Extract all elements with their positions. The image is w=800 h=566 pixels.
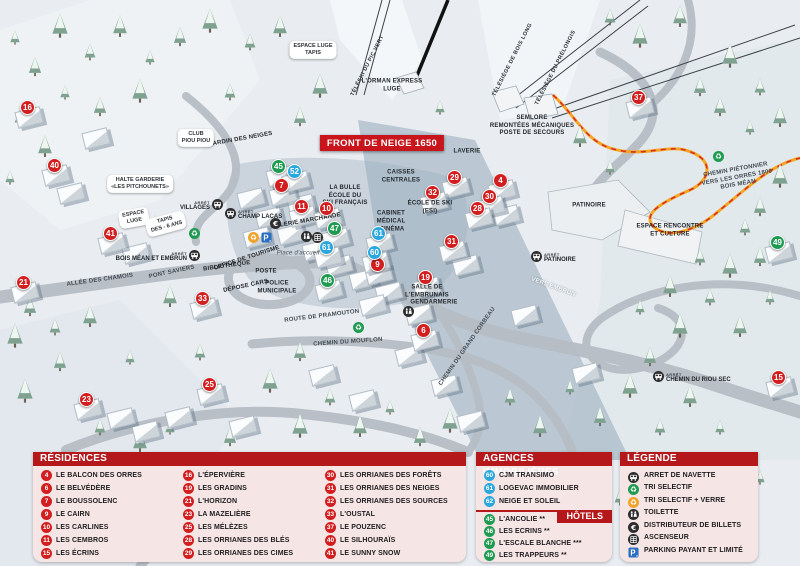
legende-header: LÉGENDE <box>620 452 758 466</box>
legend-item-label: CJM TRANSIMO <box>499 472 554 479</box>
residence-item: 9LE CAIRN <box>33 508 175 521</box>
residences-list: 4LE BALCON DES ORRES6LE BELVÉDÈRE7LE BOU… <box>33 466 466 560</box>
residence-item: 40LE SILHOURAÏS <box>317 534 464 547</box>
bus-stop-chemin-du-riou-sec: ARRÊTCHEMIN DU RIOU SEC <box>653 369 731 387</box>
legend-number-badge: 33 <box>325 509 336 520</box>
legend-number-badge: 25 <box>183 522 194 533</box>
legende-item: ASCENSEUR <box>620 532 758 545</box>
legend-item-label: L'HORIZON <box>198 498 237 505</box>
legend-number-badge: 30 <box>325 470 336 481</box>
residence-item: 32LES ORRIANES DES SOURCES <box>317 495 464 508</box>
legende-item-label: ASCENSEUR <box>644 534 689 541</box>
legende-item-label: TRI SELECTIF + VERRE <box>644 497 725 504</box>
residence-item: 37LE POUZENC <box>317 521 464 534</box>
legende-item: ARRET DE NAVETTE <box>620 469 758 482</box>
elevator-icon <box>312 232 323 243</box>
bus-stop-text: ARRÊTCHEMIN DU RIOU SEC <box>666 373 731 383</box>
bus-stop-text: ARRÊTVILLAGES <box>180 201 210 211</box>
legend-number-badge: 9 <box>41 509 52 520</box>
residence-item: 11LES CEMBROS <box>33 534 175 547</box>
legende-panel: LÉGENDE ARRET DE NAVETTE♻TRI SELECTIF♻TR… <box>620 452 758 562</box>
bus-stop-text: ARRÊTPATINOIRE <box>544 253 576 263</box>
map-label: ESPACE RENCONTRE ET CULTURE <box>636 224 703 239</box>
map-label: CABINET MÉDICAL <box>377 211 406 226</box>
map-label: CAISSES CENTRALES <box>382 170 420 185</box>
residences-column-2: 16L'ÉPERVIÈRE19LES GRADINS21L'HORIZON23L… <box>175 469 317 560</box>
legend-number-badge: 62 <box>484 496 495 507</box>
hotels-divider: HÔTELS <box>476 510 612 512</box>
residence-item: 6LE BELVÉDÈRE <box>33 482 175 495</box>
map-marker-19: 19 <box>418 270 433 285</box>
legende-bus-icon <box>628 470 639 481</box>
legende-recycle-green-icon: ♻ <box>628 482 639 493</box>
legend-item-label: LES ECRINS ** <box>499 528 550 535</box>
svg-text:♻: ♻ <box>355 323 362 332</box>
legend-item-label: LES ORRIANES DES NEIGES <box>340 485 440 492</box>
map-marker-29: 29 <box>447 170 462 185</box>
map-label: ÉCOLE DE SKI (ESI) <box>408 201 453 216</box>
bus-icon <box>212 197 223 215</box>
residence-item: 30LES ORRIANES DES FORÊTS <box>317 469 464 482</box>
hotels-header: HÔTELS <box>557 510 612 523</box>
agence-item: 61LOGEVAC IMMOBILIER <box>476 482 612 495</box>
legend-number-badge: 31 <box>325 483 336 494</box>
svg-text:P: P <box>630 548 635 557</box>
residence-item: 21L'HORIZON <box>175 495 317 508</box>
legend-item-label: NEIGE ET SOLEIL <box>499 498 560 505</box>
legend-item-label: LE BALCON DES ORRES <box>56 472 142 479</box>
legende-list: ARRET DE NAVETTE♻TRI SELECTIF♻TRI SELECT… <box>620 466 758 557</box>
map-marker-16: 16 <box>20 100 35 115</box>
map-label: PATINOIRE <box>572 202 606 210</box>
map-marker-41: 41 <box>103 226 118 241</box>
map-marker-46: 46 <box>320 273 335 288</box>
legend-item-label: LA MAZELIÈRE <box>198 511 251 518</box>
map-label: LAVERIE <box>454 148 481 156</box>
residences-column-3: 30LES ORRIANES DES FORÊTS31LES ORRIANES … <box>317 469 464 560</box>
map-cloud-label: CLUB PIOU PIOU <box>178 129 214 147</box>
legende-item: ♻TRI SELECTIF + VERRE <box>620 494 758 507</box>
map-marker-23: 23 <box>79 392 94 407</box>
legend-item-label: LE SUNNY SNOW <box>340 550 400 557</box>
map-marker-37: 37 <box>631 90 646 105</box>
legend-item-label: LE SILHOURAÏS <box>340 537 395 544</box>
legend-number-badge: 4 <box>41 470 52 481</box>
legend-item-label: LE BOUSSOLENC <box>56 498 118 505</box>
residence-item: 4LE BALCON DES ORRES <box>33 469 175 482</box>
residence-item: 31LES ORRIANES DES NEIGES <box>317 482 464 495</box>
legend-item-label: L'ÉPERVIÈRE <box>198 472 245 479</box>
bus-stop-name: CHEMIN DU RIOU SEC <box>666 377 731 383</box>
map-label: SEMLORE REMONTÉES MÉCANIQUES POSTE DE SE… <box>490 115 574 138</box>
legend-item-label: LES MÉLÈZES <box>198 524 248 531</box>
residence-item: 15LES ÉCRINS <box>33 547 175 560</box>
map-marker-52: 52 <box>287 164 302 179</box>
bus-icon <box>531 249 542 267</box>
bus-stop-name: VILLAGES <box>180 205 210 211</box>
legend-item-label: LES CARLINES <box>56 524 109 531</box>
bus-stop-name: PATINOIRE <box>544 257 576 263</box>
legend-number-badge: 19 <box>183 483 194 494</box>
svg-text:♻: ♻ <box>630 498 637 507</box>
legende-wc-icon <box>628 507 639 518</box>
legend-number-badge: 45 <box>484 514 495 525</box>
agence-item: 62NEIGE ET SOLEIL <box>476 495 612 508</box>
legende-item: €DISTRIBUTEUR DE BILLETS <box>620 519 758 532</box>
residence-item: 41LE SUNNY SNOW <box>317 547 464 560</box>
residence-item: 23LA MAZELIÈRE <box>175 508 317 521</box>
legend-item-label: LES ÉCRINS <box>56 550 99 557</box>
legend-number-badge: 29 <box>183 548 194 559</box>
residence-item: 19LES GRADINS <box>175 482 317 495</box>
legende-elevator-icon <box>628 532 639 543</box>
map-label: POSTE <box>255 268 276 276</box>
map-marker-40: 40 <box>47 158 62 173</box>
map-marker-49: 49 <box>770 235 785 250</box>
agences-hotels-panel: AGENCES IMMOBILIÈRES 60CJM TRANSIMO61LOG… <box>476 452 612 562</box>
map-cloud-label: ESPACE LUGE TAPIS <box>289 41 336 59</box>
map-label: GENDARMERIE <box>410 299 457 307</box>
legend-item-label: LES ORRIANES DES BLÉS <box>198 537 290 544</box>
hotel-item: 46LES ECRINS ** <box>476 525 612 537</box>
residence-item: 28LES ORRIANES DES BLÉS <box>175 534 317 547</box>
legende-euro-icon: € <box>628 520 639 531</box>
recycle-green-icon: ♻ <box>189 228 200 239</box>
map-marker-33: 33 <box>195 291 210 306</box>
legend-item-label: L'ESCALE BLANCHE *** <box>499 540 582 547</box>
legend-number-badge: 41 <box>325 548 336 559</box>
legende-recycle-yellow-icon: ♻ <box>628 495 639 506</box>
legende-item-label: TOILETTE <box>644 509 679 516</box>
map-marker-28: 28 <box>470 201 485 216</box>
residence-item: 7LE BOUSSOLENC <box>33 495 175 508</box>
bus-stop-villages: ARRÊTVILLAGES <box>180 197 223 215</box>
residence-item: 25LES MÉLÈZES <box>175 521 317 534</box>
bus-stop-bois-m-an-et-embrun: ARRÊTBOIS MÉAN ET EMBRUN <box>116 248 200 266</box>
residence-item: 10LES CARLINES <box>33 521 175 534</box>
residences-column-1: 4LE BALCON DES ORRES6LE BELVÉDÈRE7LE BOU… <box>33 469 175 560</box>
legende-item: TOILETTE <box>620 507 758 520</box>
legend-item-label: LES ORRIANES DES CIMES <box>198 550 293 557</box>
front-de-neige-banner: FRONT DE NEIGE 1650 <box>320 135 444 151</box>
legend-item-label: LES ORRIANES DES SOURCES <box>340 498 448 505</box>
legende-item-label: TRI SELECTIF <box>644 484 692 491</box>
parking-icon: P <box>261 232 272 243</box>
map-marker-10: 10 <box>319 201 334 216</box>
legend-number-badge: 61 <box>484 483 495 494</box>
recycle-yellow-icon: ♻ <box>248 232 259 243</box>
residences-header: RÉSIDENCES <box>33 452 466 466</box>
map-marker-21: 21 <box>16 275 31 290</box>
svg-text:♻: ♻ <box>715 152 722 161</box>
map-marker-32: 32 <box>425 185 440 200</box>
legend-number-badge: 10 <box>41 522 52 533</box>
legend-number-badge: 28 <box>183 535 194 546</box>
legend-number-badge: 23 <box>183 509 194 520</box>
legend-number-badge: 40 <box>325 535 336 546</box>
legend-number-badge: 47 <box>484 538 495 549</box>
map-marker-31: 31 <box>444 234 459 249</box>
legende-item: P PARKING PAYANT ET LIMITÉ <box>620 544 758 557</box>
svg-text:P: P <box>263 233 268 242</box>
legend-item-label: L'ANCOLIE ** <box>499 516 545 523</box>
bus-stop-champ-lacas: ARRÊTCHAMP LACAS <box>225 206 282 224</box>
bus-stop-text: ARRÊTCHAMP LACAS <box>238 210 282 220</box>
recycle-green-icon: ♻ <box>713 151 724 162</box>
bus-stop-patinoire: ARRÊTPATINOIRE <box>531 249 576 267</box>
legende-parking-icon: P <box>628 545 639 556</box>
map-marker-30: 30 <box>482 189 497 204</box>
legende-item: ♻TRI SELECTIF <box>620 482 758 495</box>
svg-text:♻: ♻ <box>191 229 198 238</box>
legend-number-badge: 16 <box>183 470 194 481</box>
map-marker-61: 61 <box>371 226 386 241</box>
legend-number-badge: 6 <box>41 483 52 494</box>
wc-icon <box>403 306 414 317</box>
legend-item-label: LE CAIRN <box>56 511 90 518</box>
legend-item-label: LES ORRIANES DES FORÊTS <box>340 472 441 479</box>
residence-item: 16L'ÉPERVIÈRE <box>175 469 317 482</box>
legend-number-badge: 49 <box>484 550 495 561</box>
legend-number-badge: 60 <box>484 470 495 481</box>
legend-item-label: LE POUZENC <box>340 524 386 531</box>
legend-number-badge: 11 <box>41 535 52 546</box>
recycle-green-icon: ♻ <box>353 322 364 333</box>
map-label: POLICE MUNICIPALE <box>258 281 297 296</box>
map-marker-25: 25 <box>202 377 217 392</box>
wc-icon <box>301 231 312 242</box>
agences-header: AGENCES IMMOBILIÈRES <box>476 452 612 466</box>
map-marker-6: 6 <box>416 323 431 338</box>
hotel-item: 49LES TRAPPEURS ** <box>476 549 612 561</box>
residences-panel: RÉSIDENCES 4LE BALCON DES ORRES6LE BELVÉ… <box>33 452 466 562</box>
bus-stop-name: CHAMP LACAS <box>238 214 282 220</box>
map-marker-11: 11 <box>294 199 309 214</box>
legend-number-badge: 15 <box>41 548 52 559</box>
map-marker-60: 60 <box>367 245 382 260</box>
legend-item-label: LES GRADINS <box>198 485 247 492</box>
map-label: Place d'accueil <box>277 250 320 258</box>
legend-number-badge: 37 <box>325 522 336 533</box>
legende-item-label: ARRET DE NAVETTE <box>644 472 715 479</box>
map-marker-15: 15 <box>771 370 786 385</box>
bus-icon <box>225 206 236 224</box>
map-label: L'ORMAN EXPRESS LUGE <box>362 79 423 94</box>
map-marker-45: 45 <box>271 159 286 174</box>
residence-item: 33L'OUSTAL <box>317 508 464 521</box>
map-label: SALLE DE L'EMBRUNAIS <box>405 285 449 300</box>
legende-item-label: DISTRIBUTEUR DE BILLETS <box>644 522 741 529</box>
legend-number-badge: 46 <box>484 526 495 537</box>
map-marker-47: 47 <box>327 221 342 236</box>
bus-icon <box>653 369 664 387</box>
svg-text:€: € <box>630 523 636 532</box>
map-marker-7: 7 <box>274 178 289 193</box>
legende-item-label: PARKING PAYANT ET LIMITÉ <box>644 547 743 554</box>
bus-stop-text: ARRÊTBOIS MÉAN ET EMBRUN <box>116 252 187 262</box>
svg-text:♻: ♻ <box>250 233 257 242</box>
legend-item-label: LE BELVÉDÈRE <box>56 485 110 492</box>
map-marker-4: 4 <box>493 173 508 188</box>
legend-number-badge: 21 <box>183 496 194 507</box>
legend-number-badge: 32 <box>325 496 336 507</box>
legend-item-label: LOGEVAC IMMOBILIER <box>499 485 579 492</box>
legend-item-label: L'OUSTAL <box>340 511 375 518</box>
legend-number-badge: 7 <box>41 496 52 507</box>
resort-map-page: 1640412133232571110929324302831196371545… <box>0 0 800 566</box>
legend-item-label: LES CEMBROS <box>56 537 108 544</box>
legend-item-label: LES TRAPPEURS ** <box>499 552 567 559</box>
residence-item: 29LES ORRIANES DES CIMES <box>175 547 317 560</box>
bus-icon <box>189 248 200 266</box>
bus-stop-name: BOIS MÉAN ET EMBRUN <box>116 256 187 262</box>
svg-text:♻: ♻ <box>630 485 637 494</box>
map-cloud-label: HALTE GARDERIE «LES PITCHOUNETS» <box>107 175 173 193</box>
hotel-item: 47L'ESCALE BLANCHE *** <box>476 537 612 549</box>
